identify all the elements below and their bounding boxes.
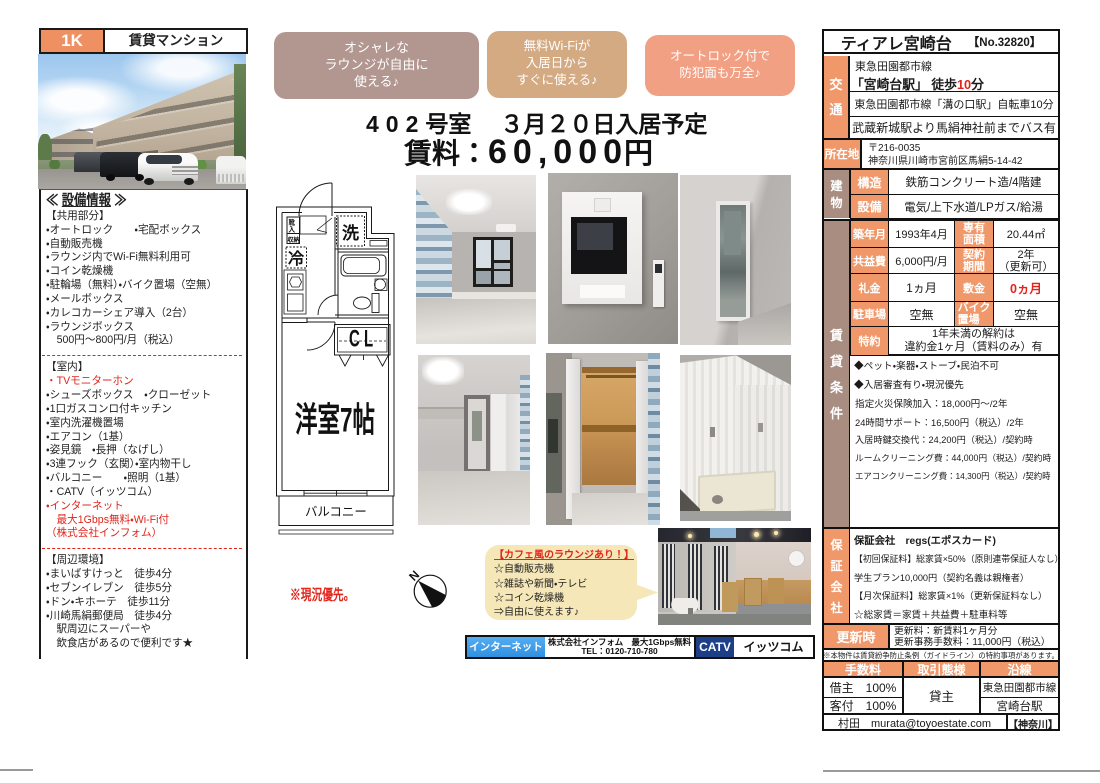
svg-text:冷: 冷: [288, 249, 305, 268]
svg-text:入: 入: [288, 226, 296, 234]
svg-text:収納: 収納: [288, 236, 300, 244]
svg-text:N: N: [406, 568, 422, 584]
svg-text:バルコニー: バルコニー: [305, 505, 367, 519]
svg-text:C L: C L: [349, 326, 373, 352]
svg-text:洋室7帖: 洋室7帖: [295, 402, 375, 440]
svg-text:洗: 洗: [342, 223, 359, 243]
svg-text:靴: 靴: [289, 218, 296, 227]
